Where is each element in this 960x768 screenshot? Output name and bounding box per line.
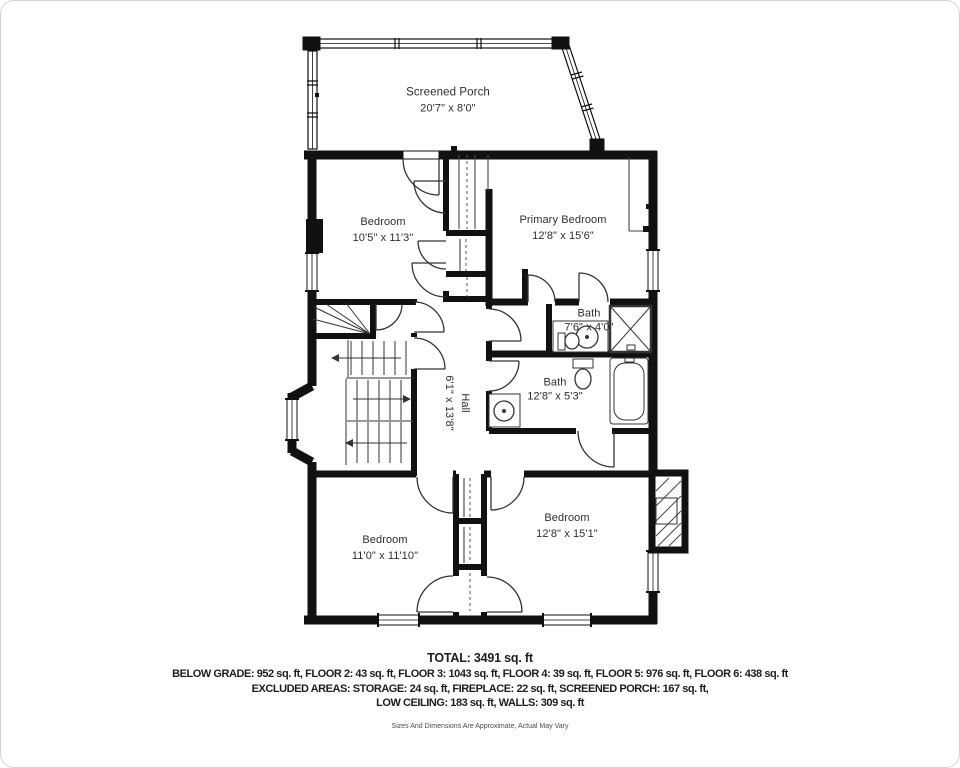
excluded-areas-line-2: LOW CEILING: 183 sq. ft, WALLS: 309 sq. …: [1, 697, 959, 709]
shower: [610, 306, 651, 352]
label-bedroom-lower-right: Bedroom 12'8" x 15'1": [536, 511, 598, 543]
label-screened-porch: Screened Porch 20'7" x 8'0": [406, 85, 490, 118]
room-dims: 7'6" x 4'0": [564, 321, 613, 335]
label-bedroom-upper-left: Bedroom 10'5" x 11'3": [353, 215, 414, 247]
room-name: Bedroom: [352, 533, 418, 549]
porch-opening: [403, 151, 439, 159]
label-bedroom-lower-left: Bedroom 11'0" x 11'10": [352, 533, 418, 565]
room-name: Primary Bedroom: [519, 213, 606, 229]
room-name: Bath: [564, 307, 613, 321]
bathtub: [610, 358, 648, 424]
room-dims: 12'8" x 15'1": [536, 527, 598, 543]
room-name: Bedroom: [353, 215, 414, 231]
label-hall: Hall 6'1" x 13'8": [440, 375, 472, 430]
vanity-sink-main: [489, 394, 520, 427]
stair-arrows: [331, 354, 411, 447]
total-area: TOTAL: 3491 sq. ft: [1, 651, 959, 665]
room-dims: 12'8" x 5'3": [527, 390, 582, 404]
room-dims: 10'5" x 11'3": [353, 231, 414, 247]
label-bath-small: Bath 7'6" x 4'0": [564, 307, 613, 335]
room-dims: 12'8" x 15'6": [519, 229, 606, 245]
excluded-areas-line: EXCLUDED AREAS: STORAGE: 24 sq. ft, FIRE…: [1, 683, 959, 695]
room-name: Screened Porch: [406, 85, 490, 102]
floor-areas-line: BELOW GRADE: 952 sq. ft, FLOOR 2: 43 sq.…: [1, 668, 959, 680]
room-name: Hall: [456, 375, 472, 430]
label-bath-main: Bath 12'8" x 5'3": [527, 376, 582, 404]
label-primary-bedroom: Primary Bedroom 12'8" x 15'6": [519, 213, 606, 245]
area-summary: TOTAL: 3491 sq. ft BELOW GRADE: 952 sq. …: [1, 651, 959, 730]
disclaimer-text: Sizes And Dimensions Are Approximate, Ac…: [1, 723, 959, 730]
room-dims: 20'7" x 8'0": [406, 101, 490, 117]
room-dims: 11'0" x 11'10": [352, 549, 418, 565]
room-dims: 6'1" x 13'8": [440, 375, 456, 430]
stairs: [313, 303, 414, 465]
room-name: Bedroom: [536, 511, 598, 527]
floorplan-page: Screened Porch 20'7" x 8'0" Bedroom 10'5…: [0, 0, 960, 768]
fireplace: [652, 473, 685, 550]
room-name: Bath: [527, 376, 582, 390]
